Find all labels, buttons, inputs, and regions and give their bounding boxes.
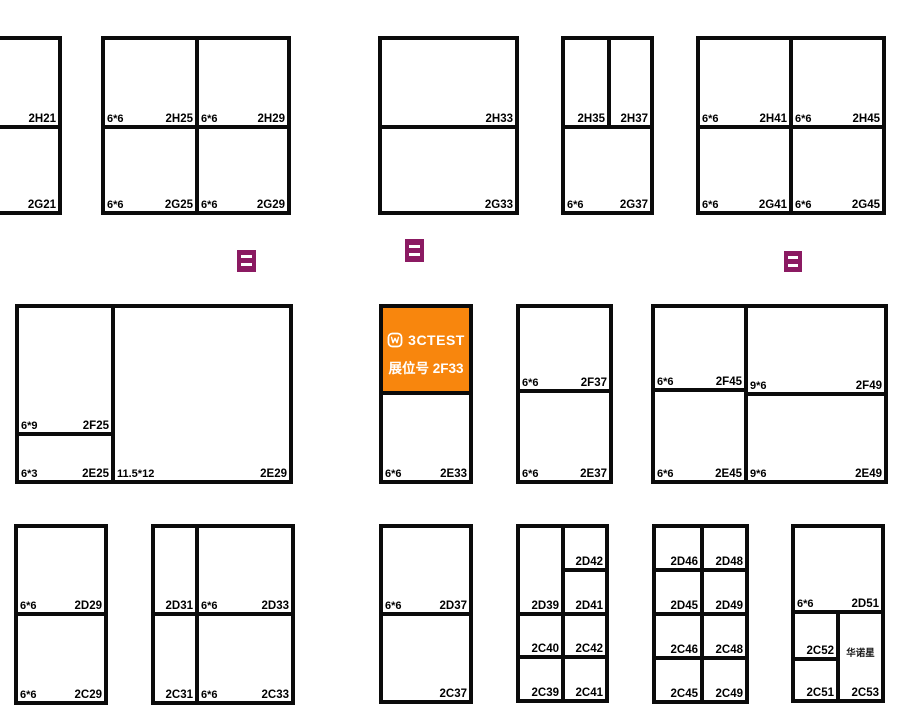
booth-size-label: 6*6: [795, 199, 812, 211]
purple-facility-icon: [784, 251, 802, 272]
booth-id-label: 2G29: [257, 199, 285, 211]
booth-size-label: 6*6: [385, 468, 402, 480]
booth-size-label: 6*6: [522, 468, 539, 480]
booth-2C46: 2C46: [652, 612, 704, 660]
booth-id-label: 2H33: [486, 113, 514, 125]
booth-2F37: 6*62F37: [516, 304, 613, 393]
booth-2D48: 2D48: [700, 524, 749, 572]
booth-size-label: 6*9: [21, 420, 38, 432]
booth-2C51: 2C51: [791, 657, 840, 703]
booth-id-label: 2F49: [856, 380, 882, 392]
booth-2H29: 6*62H29: [195, 36, 291, 129]
booth-size-label: 9*6: [750, 380, 767, 392]
booth-2C49: 2C49: [700, 656, 749, 704]
booth-size-label: 6*6: [201, 113, 218, 125]
booth-2G21: 2G21: [0, 125, 62, 215]
booth-id-label: 2C53: [852, 687, 880, 699]
exhibitor-logo: 3CTEST: [383, 332, 469, 348]
booth-id-label: 2C40: [532, 643, 560, 655]
booth-2H37: 2H37: [607, 36, 654, 129]
booth-exhibitor-note: 华诺星: [840, 645, 881, 659]
booth-id-label: 2E25: [82, 468, 109, 480]
booth-size-label: 6*6: [201, 689, 218, 701]
highlight-booth-number-label: 展位号 2F33: [383, 357, 469, 377]
booth-2C53: 华诺星2C53: [836, 610, 885, 703]
booth-id-label: 2C29: [75, 689, 103, 701]
booth-2D51: 6*62D51: [791, 524, 885, 614]
booth-2C40: 2C40: [516, 612, 565, 659]
booth-id-label: 2C51: [807, 687, 835, 699]
booth-2D31: 2D31: [151, 524, 199, 616]
booth-2C45: 2C45: [652, 656, 704, 704]
booth-2D39: 2D39: [516, 524, 565, 616]
booth-id-label: 2D29: [75, 600, 103, 612]
booth-id-label: 2D48: [716, 556, 744, 568]
booth-id-label: 2C37: [440, 688, 468, 700]
booth-id-label: 2H25: [166, 113, 194, 125]
booth-2H33: 2H33: [378, 36, 519, 129]
booth-id-label: 2D41: [576, 600, 604, 612]
booth-2H45: 6*62H45: [789, 36, 886, 129]
purple-facility-icon: [237, 250, 256, 272]
booth-id-label: 2F45: [716, 376, 742, 388]
booth-size-label: 6*6: [385, 600, 402, 612]
booth-2F25: 6*92F25: [15, 304, 115, 436]
booth-2C33: 6*62C33: [195, 612, 295, 705]
booth-size-label: 6*6: [20, 600, 37, 612]
booth-id-label: 2C39: [532, 687, 560, 699]
booth-id-label: 2D33: [262, 600, 290, 612]
booth-2C48: 2C48: [700, 612, 749, 660]
booth-size-label: 6*6: [201, 199, 218, 211]
booth-id-label: 2G21: [28, 199, 56, 211]
booth-2G33: 2G33: [378, 125, 519, 215]
booth-id-label: 2C31: [166, 689, 194, 701]
booth-id-label: 2E29: [260, 468, 287, 480]
booth-id-label: 2D45: [671, 600, 699, 612]
booth-2F49: 9*62F49: [744, 304, 888, 396]
booth-id-label: 2H45: [853, 113, 881, 125]
booth-2D45: 2D45: [652, 568, 704, 616]
booth-size-label: 6*6: [797, 598, 814, 610]
booth-id-label: 2D39: [532, 600, 560, 612]
booth-id-label: 2E33: [440, 468, 467, 480]
booth-2G45: 6*62G45: [789, 125, 886, 215]
booth-2C29: 6*62C29: [14, 612, 108, 705]
booth-size-label: 6*6: [657, 376, 674, 388]
booth-2E25: 6*32E25: [15, 432, 115, 484]
booth-id-label: 2D37: [440, 600, 468, 612]
booth-id-label: 2F25: [83, 420, 109, 432]
booth-size-label: 6*6: [107, 113, 124, 125]
booth-2E29: 11.5*122E29: [111, 304, 293, 484]
booth-id-label: 2C42: [576, 643, 604, 655]
booth-id-label: 2C52: [807, 645, 835, 657]
booth-2G37: 6*62G37: [561, 125, 654, 215]
booth-size-label: 6*6: [201, 600, 218, 612]
booth-2H21: 2H21: [0, 36, 62, 129]
booth-size-label: 6*6: [522, 377, 539, 389]
booth-id-label: 2D46: [671, 556, 699, 568]
booth-id-label: 2F37: [581, 377, 607, 389]
booth-2D46: 2D46: [652, 524, 704, 572]
booth-size-label: 6*6: [795, 113, 812, 125]
booth-size-label: 6*6: [657, 468, 674, 480]
booth-id-label: 2C46: [671, 644, 699, 656]
booth-2E37: 6*62E37: [516, 389, 613, 484]
purple-facility-icon: [405, 239, 424, 262]
booth-2C31: 2C31: [151, 612, 199, 705]
booth-size-label: 6*3: [21, 468, 38, 480]
exhibitor-name-label: 3CTEST: [408, 332, 465, 348]
booth-size-label: 6*6: [567, 199, 584, 211]
booth-id-label: 2E45: [715, 468, 742, 480]
booth-2H35: 2H35: [561, 36, 611, 129]
booth-size-label: 6*6: [20, 689, 37, 701]
booth-size-label: 6*6: [107, 199, 124, 211]
booth-id-label: 2G25: [165, 199, 193, 211]
booth-id-label: 2H29: [258, 113, 286, 125]
booth-id-label: 2C49: [716, 688, 744, 700]
booth-2D29: 6*62D29: [14, 524, 108, 616]
booth-id-label: 2D51: [852, 598, 880, 610]
booth-2E45: 6*62E45: [651, 388, 748, 484]
booth-2C37: 2C37: [379, 612, 473, 704]
booth-2G41: 6*62G41: [696, 125, 793, 215]
booth-2E33: 6*62E33: [379, 391, 473, 484]
booth-2G25: 6*62G25: [101, 125, 199, 215]
booth-id-label: 2D49: [716, 600, 744, 612]
booth-id-label: 2H35: [578, 113, 606, 125]
booth-2G29: 6*62G29: [195, 125, 291, 215]
booth-id-label: 2D42: [576, 556, 604, 568]
booth-id-label: 2E49: [855, 468, 882, 480]
booth-2C52: 2C52: [791, 610, 840, 661]
booth-2C39: 2C39: [516, 655, 565, 703]
booth-id-label: 2C41: [576, 687, 604, 699]
floorplan-canvas: 2H212G216*62H256*62H296*62G256*62G292H33…: [0, 0, 900, 716]
booth-size-label: 6*6: [702, 113, 719, 125]
booth-id-label: 2C48: [716, 644, 744, 656]
booth-2D33: 6*62D33: [195, 524, 295, 616]
booth-2C42: 2C42: [561, 612, 609, 659]
booth-id-label: 2H37: [621, 113, 649, 125]
booth-id-label: 2E37: [580, 468, 607, 480]
booth-id-label: 2H21: [29, 113, 57, 125]
3ctest-logo-icon: [387, 332, 403, 348]
booth-2D41: 2D41: [561, 568, 609, 616]
booth-id-label: 2D31: [166, 600, 194, 612]
booth-size-label: 6*6: [702, 199, 719, 211]
booth-size-label: 11.5*12: [117, 468, 154, 480]
booth-id-label: 2C45: [671, 688, 699, 700]
booth-2D37: 6*62D37: [379, 524, 473, 616]
booth-2D49: 2D49: [700, 568, 749, 616]
booth-2D42: 2D42: [561, 524, 609, 572]
booth-2C41: 2C41: [561, 655, 609, 703]
booth-2F33: 3CTEST展位号 2F33: [379, 304, 473, 395]
booth-id-label: 2C33: [262, 689, 290, 701]
booth-id-label: 2G33: [485, 199, 513, 211]
booth-id-label: 2G41: [759, 199, 787, 211]
booth-id-label: 2G45: [852, 199, 880, 211]
booth-id-label: 2G37: [620, 199, 648, 211]
booth-2H41: 6*62H41: [696, 36, 793, 129]
booth-size-label: 9*6: [750, 468, 767, 480]
booth-2E49: 9*62E49: [744, 392, 888, 484]
booth-id-label: 2H41: [760, 113, 788, 125]
booth-2F45: 6*62F45: [651, 304, 748, 392]
booth-2H25: 6*62H25: [101, 36, 199, 129]
